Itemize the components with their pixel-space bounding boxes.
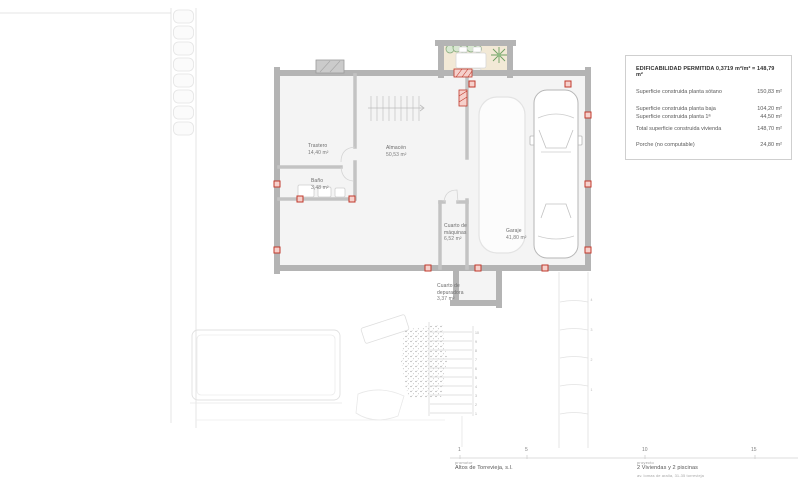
room-area: 6,52 m² [444,236,470,243]
room-name: Trastero [308,143,327,149]
scale-tick-1: 1 [458,447,461,453]
room-area: 3,37 m² [437,296,467,303]
info-row-primera: Superficie construida planta 1ª 44,50 m² [636,114,782,120]
room-area: 3,48 m² [311,185,345,192]
info-label: Porche (no computable) [636,142,695,148]
titleblock-lines [450,455,798,459]
info-label: Total superficie construida vivienda [636,126,721,132]
site-tree [401,324,447,398]
room-label-almacen: Almacén 50,53 m² [386,138,430,165]
info-label: Superficie construida planta 1ª [636,114,711,120]
svg-text:5: 5 [475,376,477,380]
room-label-trastero: Trastero 14,40 m² [308,136,352,163]
info-row-sotano: Superficie construida planta sótano 150,… [636,89,782,95]
info-value: 44,50 m² [760,114,782,120]
scale-tick-15: 15 [751,447,757,453]
room-area: 50,53 m² [386,152,430,159]
info-row-porche: Porche (no computable) 24,80 m² [636,142,782,148]
svg-text:1: 1 [591,388,593,392]
edificability-title: EDIFICABILIDAD PERMITIDA 0,3719 m²/m² = … [636,66,782,78]
info-label: Superficie construida planta sótano [636,89,722,95]
svg-text:3: 3 [591,328,593,332]
info-row-total: Total superficie construida vivienda 148… [636,126,782,132]
room-label-depuradora: Cuarto de depuradora 3,37 m² [437,276,467,310]
courtyard-plant-burst [491,47,507,63]
svg-text:9: 9 [475,340,477,344]
scale-tick-5: 5 [525,447,528,453]
info-label: Superficie construida planta baja [636,106,716,112]
info-value: 148,70 m² [757,126,782,132]
svg-text:2: 2 [475,403,477,407]
site-pool [190,330,342,403]
site-right-path-numbers: 43 21 [591,298,593,392]
promoter-name: Altos de Torrevieja, s.l. [455,465,513,471]
room-label-garaje: Garaje 41,80 m² [506,221,546,248]
svg-text:8: 8 [475,349,477,353]
project-address: av. lomas de aralia, 31-35 torrevieja [637,473,704,478]
edificability-info-box: EDIFICABILIDAD PERMITIDA 0,3719 m²/m² = … [625,55,792,160]
info-value: 24,80 m² [760,142,782,148]
info-value: 104,20 m² [757,106,782,112]
room-name: Cuarto de máquinas [444,223,467,236]
info-value: 150,83 m² [757,89,782,95]
drawing-sheet: 1098 765 432 1 43 21 [0,0,800,480]
svg-text:1: 1 [475,412,477,416]
site-hedge [174,10,194,135]
room-name: Cuarto de depuradora [437,283,464,296]
room-name: Baño [311,178,323,184]
room-area: 14,40 m² [308,150,352,157]
info-row-baja: Superficie construida planta baja 104,20… [636,106,782,112]
svg-text:4: 4 [475,385,477,389]
site-stairs-numbers: 1098 765 432 1 [475,331,479,416]
room-area: 41,80 m² [506,235,546,242]
site-right-path [560,301,588,415]
svg-text:6: 6 [475,367,477,371]
svg-text:7: 7 [475,358,477,362]
room-label-bano: Baño 3,48 m² [311,171,345,198]
scale-tick-10: 10 [642,447,648,453]
site-misc-shapes [356,314,409,420]
project-name: 2 Viviendas y 2 piscinas [637,465,698,471]
room-label-maquinas: Cuarto de máquinas 6,52 m² [444,216,470,250]
room-name: Almacén [386,145,406,151]
svg-text:10: 10 [475,331,479,335]
room-name: Garaje [506,228,522,234]
svg-text:2: 2 [591,358,593,362]
svg-text:4: 4 [591,298,593,302]
svg-text:3: 3 [475,394,477,398]
chimney [316,60,344,73]
